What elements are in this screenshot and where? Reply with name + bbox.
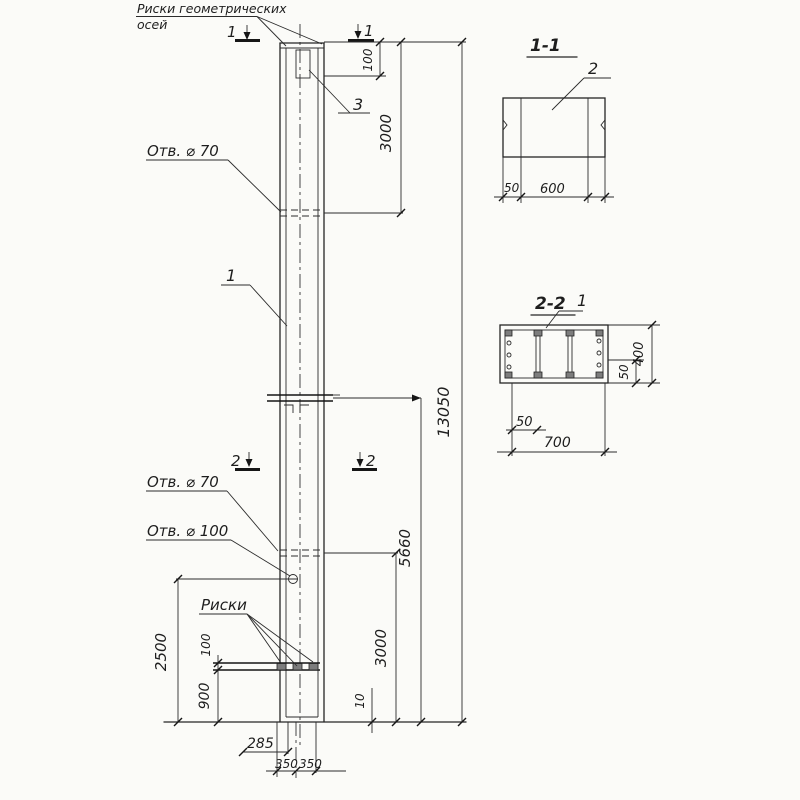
- section-1-1-dim-600: 600: [540, 182, 565, 197]
- hole70-upper-callout: Отв. ⌀ 70: [146, 142, 281, 212]
- section-2-2-ticks: [508, 321, 656, 456]
- callouts: Риски геометрических осей 3 Отв. ⌀ 70 1 …: [136, 1, 370, 666]
- section-1-1-part2-label: 2: [588, 59, 598, 78]
- riski-bar: [213, 663, 320, 670]
- hole70-upper-label: Отв. ⌀ 70: [147, 142, 219, 160]
- section-1-1: 1-1 2 50 600: [494, 36, 614, 203]
- cut-1-right-marker: 1: [348, 22, 374, 42]
- riski-label: Риски: [201, 596, 247, 614]
- geo-axes-label-line1: Риски геометрических: [137, 1, 287, 16]
- section-2-2-weld-marks: [505, 330, 603, 378]
- dim-5660: 5660: [396, 529, 414, 567]
- cut-2-right-marker: 2: [352, 452, 377, 471]
- dim-2500: 2500: [152, 633, 170, 671]
- section-2-2-outline: [500, 325, 608, 383]
- hole-70-lower: [280, 550, 324, 556]
- dim-100-bar: 100: [199, 633, 213, 656]
- part1-callout: 1: [221, 266, 287, 326]
- section-2-2-part1-label: 1: [577, 291, 587, 310]
- svg-text:1: 1: [227, 23, 237, 41]
- dim-10-base: 10: [353, 693, 367, 709]
- top-insert-part3: [296, 50, 310, 78]
- hole-70-upper: [280, 210, 324, 216]
- part3-label: 3: [353, 95, 363, 114]
- section-2-2-dim-700: 700: [544, 435, 571, 451]
- section-1-1-title: 1-1: [530, 36, 561, 56]
- middle-bracket: [267, 395, 340, 413]
- cut-1-left-marker: 1: [227, 23, 260, 42]
- riski-callout: Риски: [199, 596, 313, 666]
- dim-3000-top: 3000: [377, 114, 395, 152]
- svg-text:2: 2: [231, 452, 241, 470]
- technical-drawing: Риски геометрических осей 3 Отв. ⌀ 70 1 …: [0, 0, 800, 800]
- section-2-2-dim-50-right: 50: [617, 364, 631, 380]
- bracket-mark-right: [300, 405, 309, 413]
- dim-100-top: 100: [361, 48, 375, 71]
- dim-13050-total: 13050: [434, 387, 453, 438]
- dim-3000-bottom: 3000: [372, 629, 390, 667]
- dim-285: 285: [247, 736, 274, 752]
- hole100-label: Отв. ⌀ 100: [147, 522, 228, 540]
- hole100-callout: Отв. ⌀ 100: [146, 522, 290, 576]
- section-1-1-outline: [503, 98, 605, 157]
- dim-900: 900: [197, 683, 213, 710]
- riska-mark: [293, 664, 302, 671]
- svg-text:2: 2: [366, 452, 376, 470]
- cut-2-left-marker: 2: [231, 452, 260, 471]
- section-2-2: 2-2 1 50 400: [497, 291, 660, 456]
- section-2-2-inner-frame: [505, 330, 603, 378]
- section-cut-markers: 1 1 2 2: [227, 22, 377, 471]
- blueprint-page: Риски геометрических осей 3 Отв. ⌀ 70 1 …: [0, 0, 800, 800]
- svg-text:1: 1: [364, 22, 374, 40]
- section-2-2-dim-50-bottom: 50: [516, 415, 533, 430]
- riska-mark: [277, 664, 286, 671]
- hole70-lower-label: Отв. ⌀ 70: [147, 473, 219, 491]
- bracket-mark-left: [284, 405, 293, 413]
- section-1-1-part2-callout: 2: [552, 59, 611, 110]
- riska-mark: [309, 664, 318, 671]
- geo-axes-label-line2: осей: [137, 17, 167, 32]
- part1-label: 1: [226, 266, 236, 285]
